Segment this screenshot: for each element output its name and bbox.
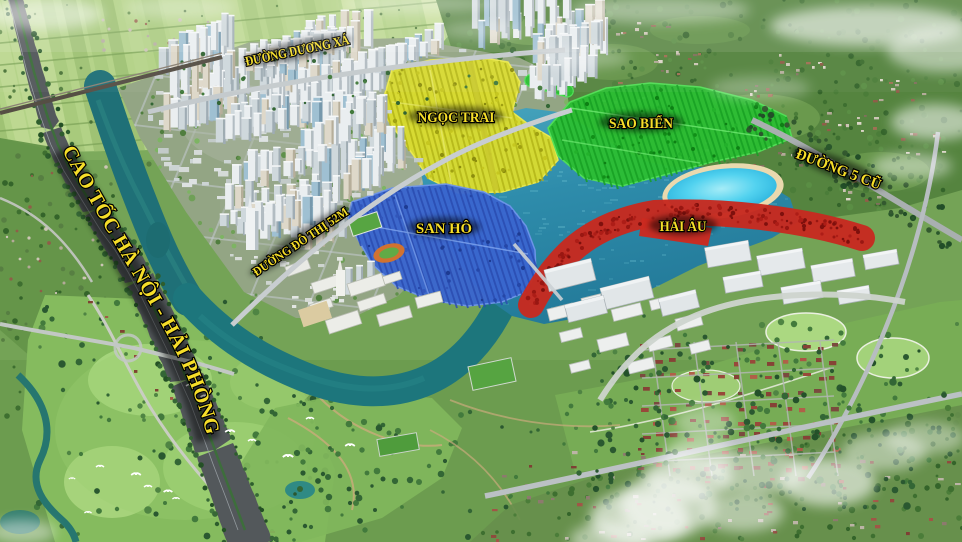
svg-text:SAO BIỂN: SAO BIỂN bbox=[609, 114, 673, 132]
svg-text:HẢI ÂU: HẢI ÂU bbox=[660, 218, 707, 235]
svg-text:SAN HÔ: SAN HÔ bbox=[416, 220, 472, 237]
svg-text:NGỌC TRAI: NGỌC TRAI bbox=[418, 110, 495, 126]
